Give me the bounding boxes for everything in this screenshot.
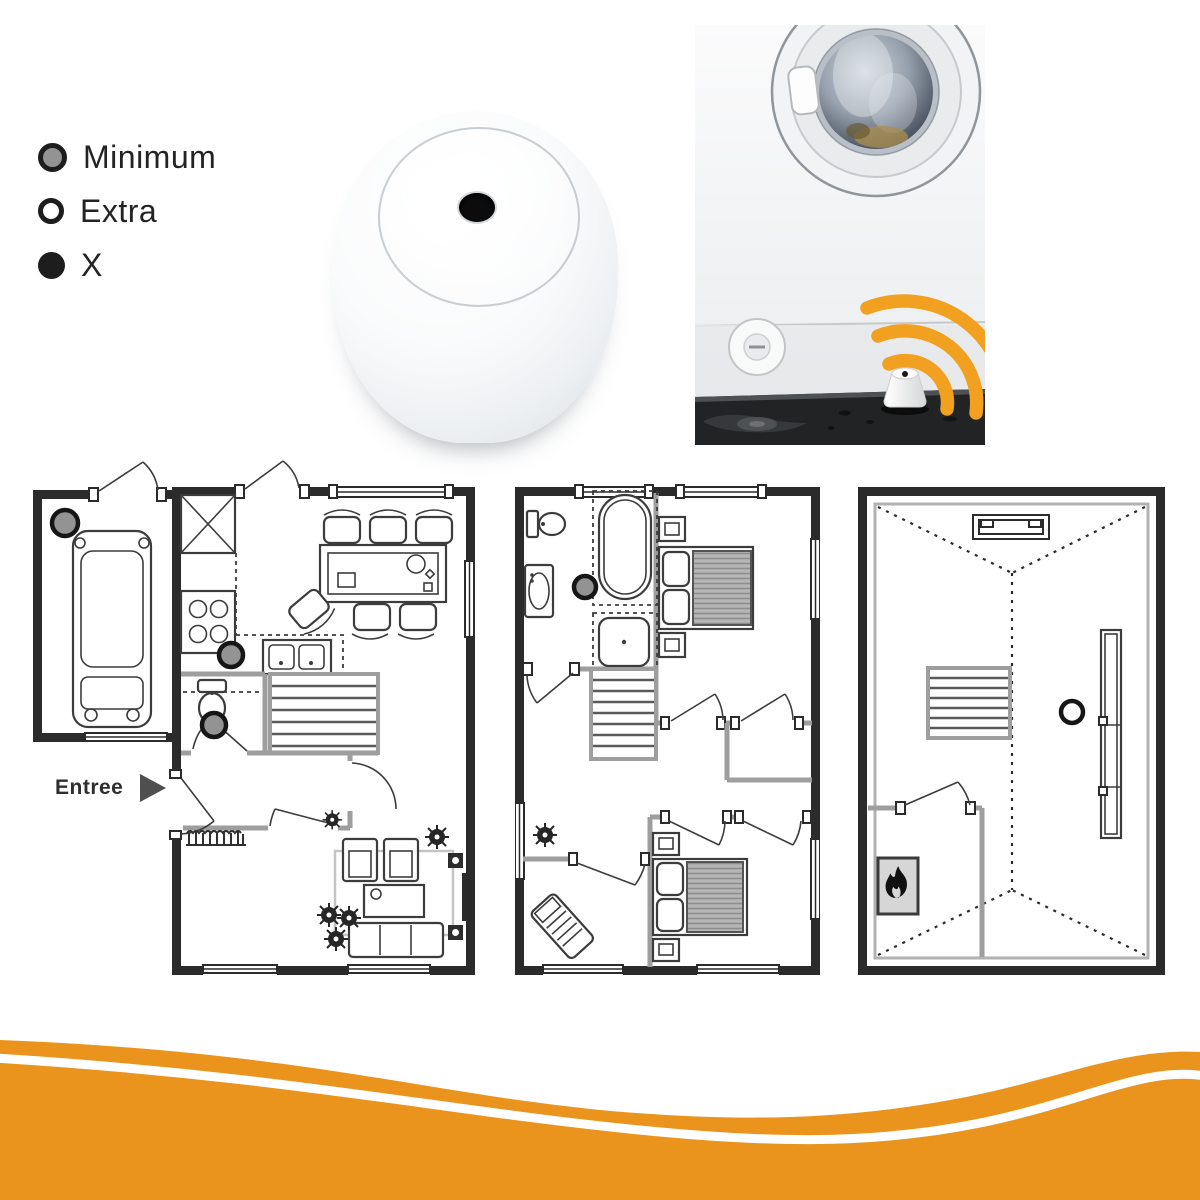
entree-arrow-icon [140, 774, 166, 802]
bedroom-bottom [653, 833, 747, 961]
car [73, 531, 151, 727]
tv [448, 853, 469, 940]
legend-item-extra: Extra [38, 184, 216, 238]
stairs [591, 669, 656, 759]
x-marker-icon [38, 252, 65, 279]
bedroom-top [656, 517, 812, 729]
legend: Minimum Extra X [38, 130, 216, 292]
wave-footer [0, 1000, 1200, 1200]
flame-icon [878, 858, 918, 914]
plant [533, 823, 557, 847]
stairs [270, 674, 378, 753]
roof-window [973, 515, 1049, 539]
sensor-marker-extra [1061, 701, 1083, 723]
radiator [186, 831, 246, 845]
legend-label: X [81, 247, 103, 284]
sofa [349, 923, 443, 957]
wc [181, 674, 265, 753]
legend-label: Extra [80, 193, 157, 230]
boiler-room [868, 782, 982, 957]
sensor-product-photo [330, 105, 625, 450]
lounge-chair [530, 893, 595, 960]
legend-item-minimum: Minimum [38, 130, 216, 184]
stairs [928, 668, 1010, 738]
entree-label: Entree [55, 776, 123, 800]
dining-area [285, 510, 452, 639]
sensor-marker-minimum [219, 643, 243, 667]
minimum-marker-icon [38, 143, 67, 172]
kitchen-sink [263, 640, 331, 674]
floor-plan-attic [858, 487, 1165, 975]
sensor-layer [574, 576, 596, 598]
legend-item-x: X [38, 238, 216, 292]
sensor-marker-minimum [52, 510, 78, 536]
extra-marker-icon [38, 198, 64, 224]
sensor-marker-minimum [202, 713, 226, 737]
sensor-marker-minimum [574, 576, 596, 598]
toilet [527, 511, 565, 537]
double-bed [653, 833, 747, 961]
filter-cap [729, 319, 785, 375]
entree: Entree [55, 774, 166, 802]
armchair [343, 839, 418, 881]
washing-machine-photo [695, 25, 985, 445]
legend-label: Minimum [83, 139, 216, 176]
garage [38, 462, 177, 744]
door-handle [787, 65, 820, 115]
double-bed [659, 517, 753, 657]
floor-plan-first [515, 455, 820, 975]
living-room [317, 810, 469, 957]
floor-plan-ground [33, 455, 475, 975]
sensor-opening-hole [459, 193, 495, 222]
dining-chair [324, 510, 452, 543]
product-infographic: Minimum Extra X [0, 0, 1200, 1200]
bathroom-sink [525, 565, 553, 617]
side-room [523, 823, 650, 960]
radiator [1099, 630, 1121, 838]
sensor-layer [1061, 701, 1083, 723]
